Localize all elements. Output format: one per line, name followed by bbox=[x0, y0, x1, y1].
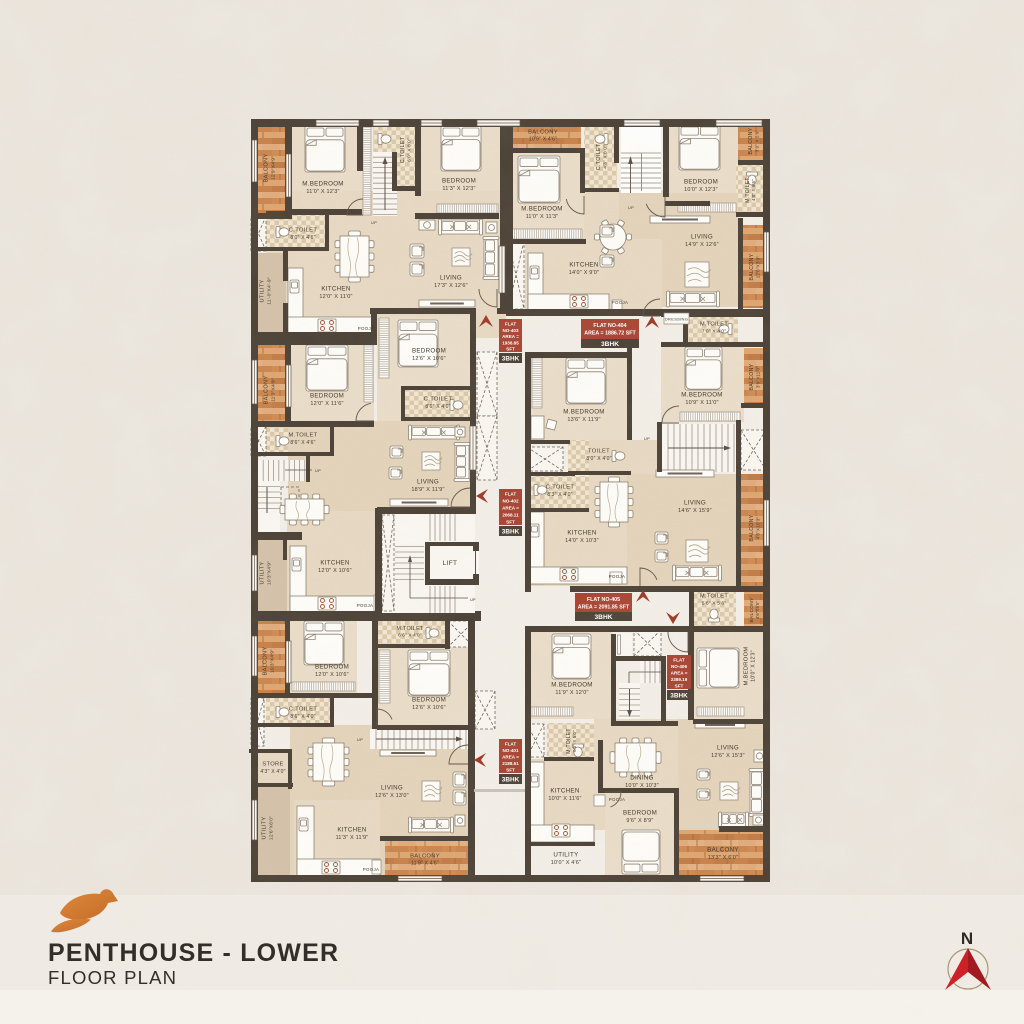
svg-text:N: N bbox=[961, 929, 973, 948]
svg-text:FLOOR PLAN: FLOOR PLAN bbox=[48, 967, 177, 988]
svg-text:PENTHOUSE - LOWER: PENTHOUSE - LOWER bbox=[48, 939, 339, 967]
